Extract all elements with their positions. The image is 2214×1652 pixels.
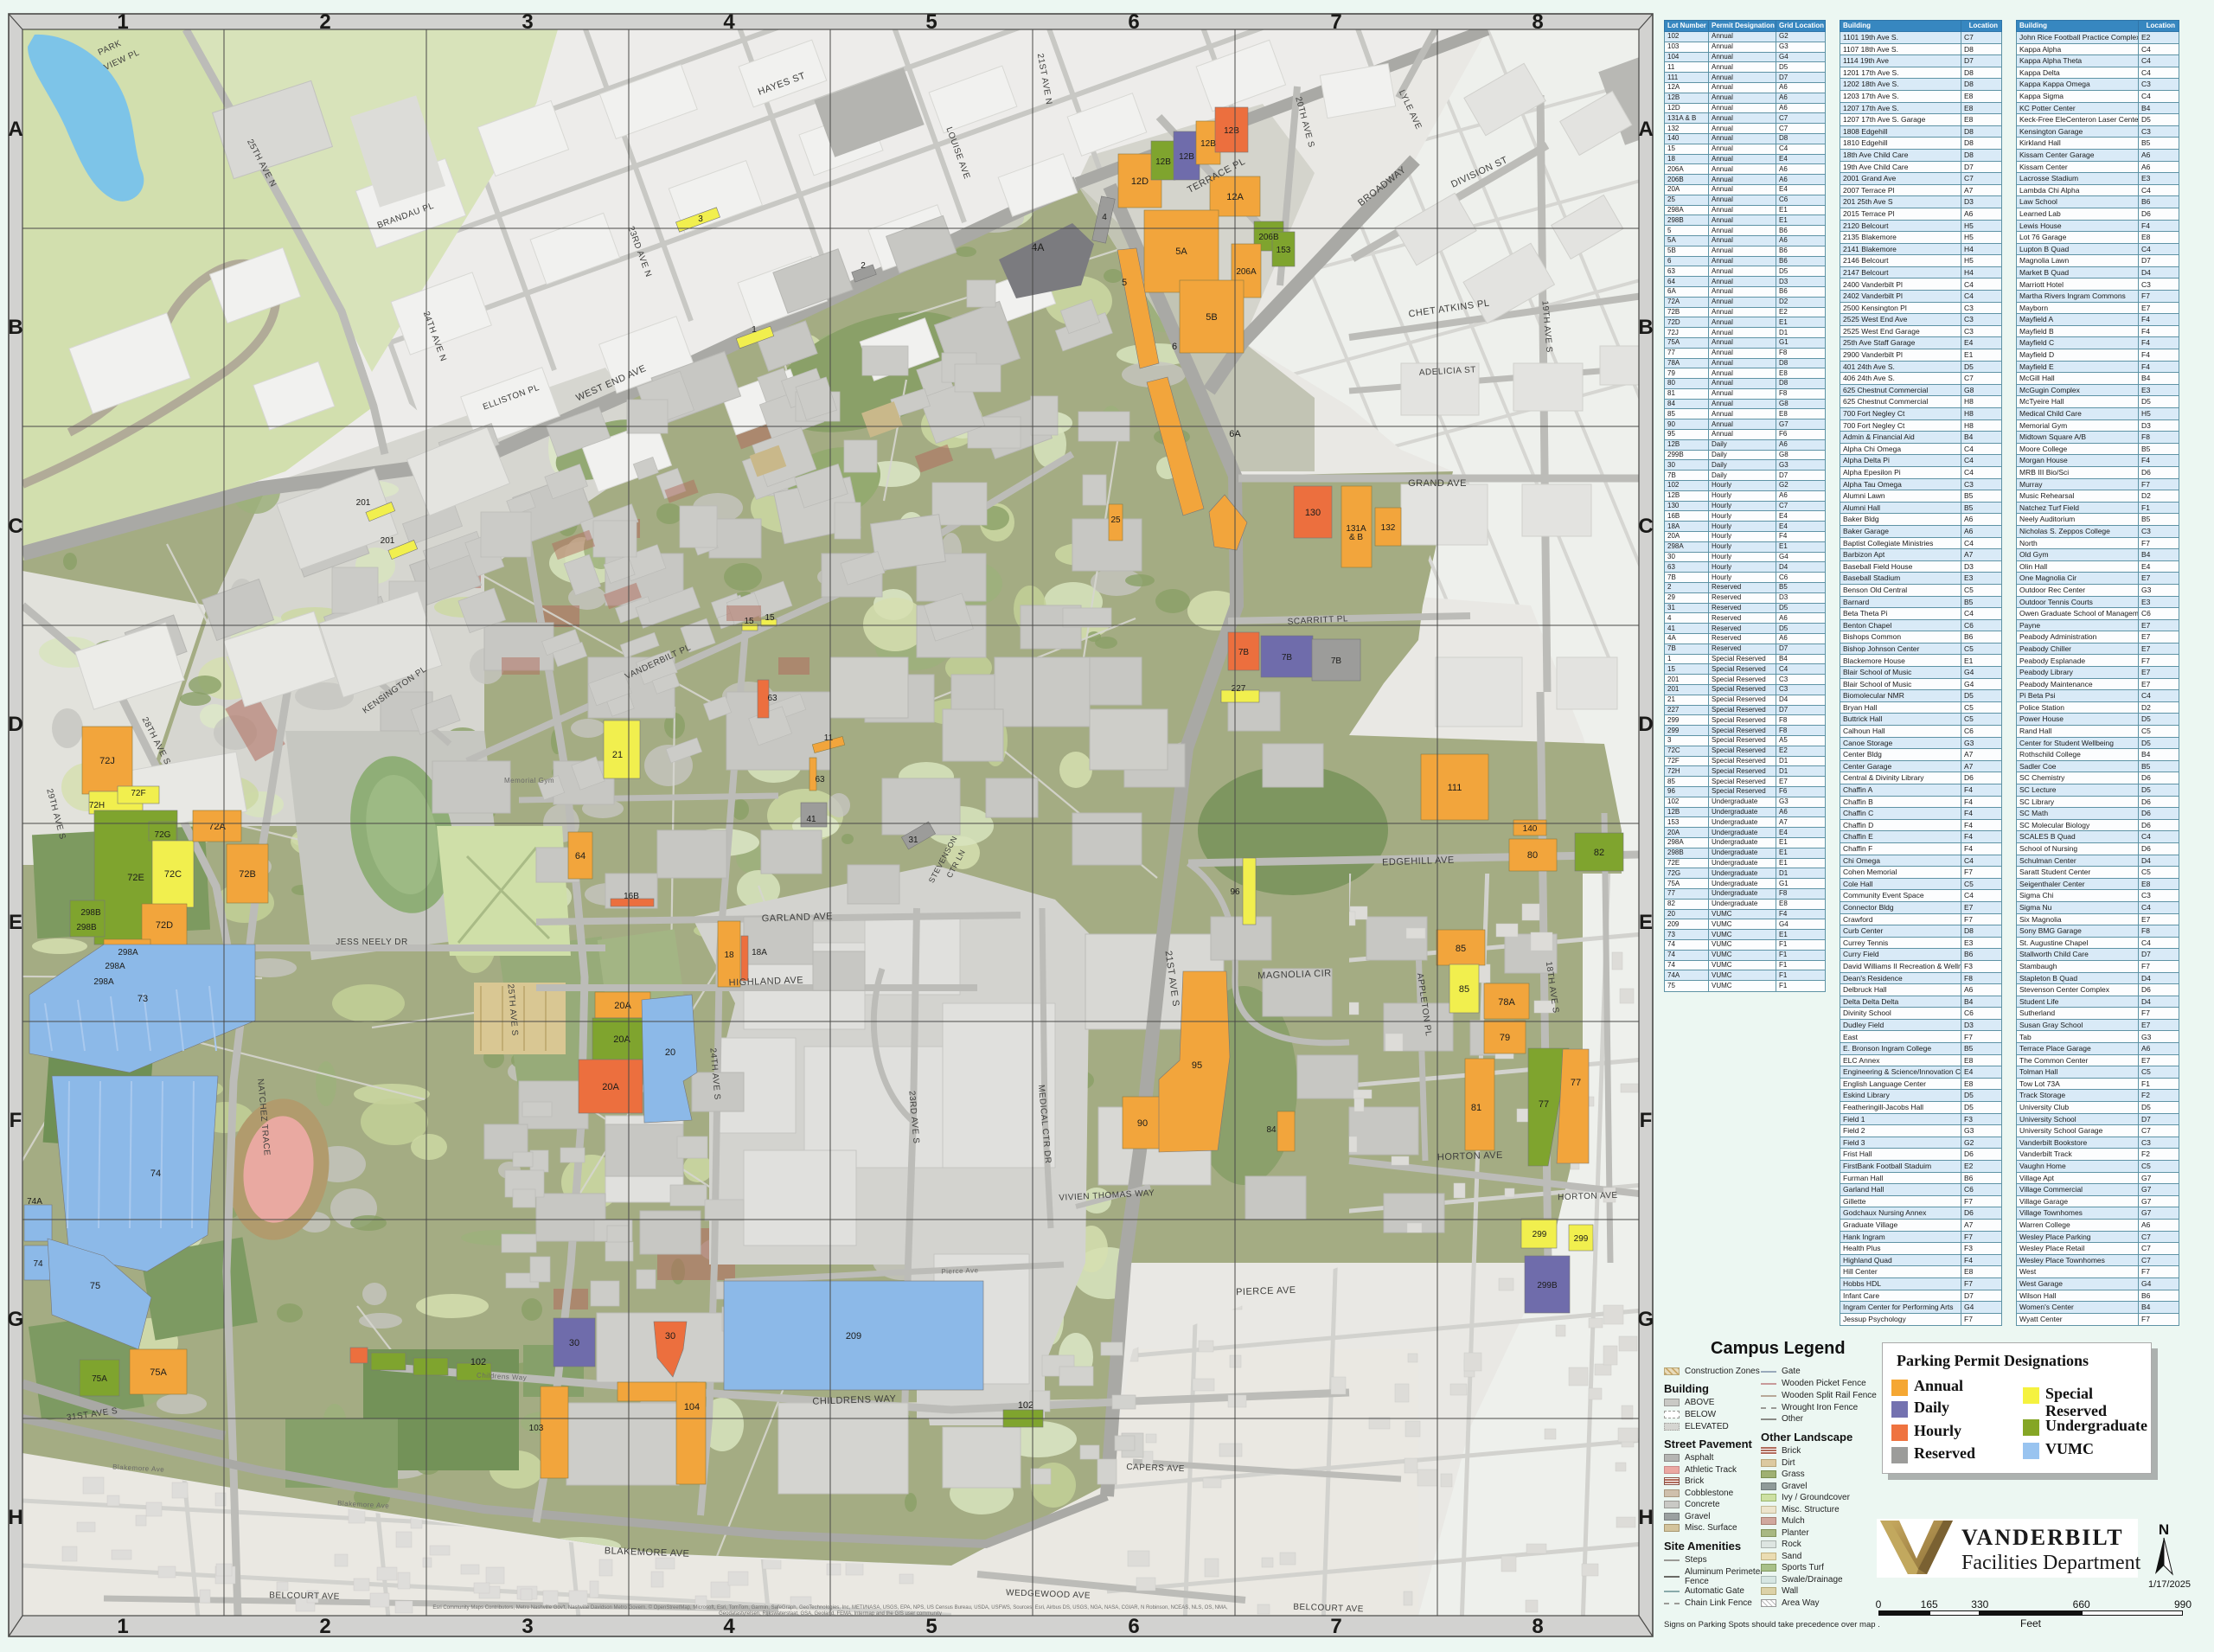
svg-text:N: N — [2159, 1521, 2169, 1538]
svg-text:72E: 72E — [127, 873, 144, 883]
svg-text:201: 201 — [356, 498, 371, 508]
svg-text:79: 79 — [1500, 1033, 1510, 1043]
svg-text:A: A — [1638, 118, 1653, 141]
svg-text:77: 77 — [1571, 1078, 1581, 1088]
svg-text:15: 15 — [765, 613, 775, 623]
svg-text:75A: 75A — [150, 1367, 167, 1378]
svg-text:11: 11 — [824, 733, 834, 743]
svg-text:12D: 12D — [1131, 176, 1149, 187]
svg-text:90: 90 — [1137, 1118, 1148, 1129]
svg-text:72C: 72C — [164, 869, 182, 880]
svg-text:8: 8 — [1532, 1615, 1543, 1638]
svg-text:299B: 299B — [1537, 1281, 1558, 1290]
svg-text:7: 7 — [1330, 1615, 1341, 1638]
svg-text:21: 21 — [612, 750, 623, 760]
svg-text:20A: 20A — [613, 1034, 630, 1045]
svg-text:299: 299 — [1533, 1230, 1547, 1239]
svg-text:B: B — [8, 316, 22, 339]
svg-text:BELCOURT AVE: BELCOURT AVE — [269, 1591, 340, 1601]
svg-text:77: 77 — [1539, 1099, 1549, 1110]
svg-text:5: 5 — [925, 1615, 937, 1638]
svg-text:15: 15 — [744, 617, 754, 626]
svg-text:72H: 72H — [89, 801, 105, 810]
svg-text:75A: 75A — [92, 1374, 107, 1384]
svg-text:7B: 7B — [1238, 648, 1250, 657]
svg-text:75: 75 — [90, 1281, 100, 1291]
svg-text:20: 20 — [665, 1047, 675, 1058]
svg-text:298B: 298B — [76, 923, 97, 932]
svg-text:63: 63 — [767, 694, 777, 703]
svg-text:C: C — [8, 515, 22, 538]
svg-text:JESS NEELY DR: JESS NEELY DR — [336, 938, 407, 947]
svg-text:78A: 78A — [1498, 997, 1515, 1008]
svg-text:74A: 74A — [27, 1197, 42, 1207]
svg-text:D: D — [8, 713, 22, 736]
svg-text:80: 80 — [1527, 850, 1538, 861]
svg-text:8: 8 — [1532, 10, 1543, 34]
svg-text:12B: 12B — [1224, 126, 1239, 136]
svg-text:298A: 298A — [105, 962, 125, 971]
svg-text:81: 81 — [1471, 1103, 1481, 1113]
svg-text:73: 73 — [138, 994, 148, 1004]
svg-text:72J: 72J — [99, 756, 115, 766]
svg-text:G: G — [1638, 1308, 1654, 1331]
svg-text:2: 2 — [319, 10, 330, 34]
svg-text:5A: 5A — [1175, 247, 1187, 257]
svg-text:298A: 298A — [118, 948, 138, 957]
svg-text:Pierce Ave: Pierce Ave — [941, 1266, 978, 1276]
svg-text:7: 7 — [1330, 10, 1341, 34]
svg-text:227: 227 — [1232, 684, 1246, 694]
svg-text:102: 102 — [1018, 1400, 1033, 1411]
svg-text:298B: 298B — [80, 908, 101, 918]
svg-text:72G: 72G — [155, 830, 171, 840]
svg-text:299: 299 — [1574, 1234, 1589, 1244]
svg-text:4A: 4A — [1032, 241, 1045, 253]
svg-text:63: 63 — [815, 775, 825, 784]
svg-text:4: 4 — [1102, 213, 1107, 222]
svg-text:72F: 72F — [131, 789, 145, 798]
svg-text:C: C — [1638, 515, 1653, 538]
svg-text:5B: 5B — [1206, 312, 1217, 323]
svg-text:82: 82 — [1594, 848, 1604, 858]
svg-text:3: 3 — [522, 1615, 533, 1638]
svg-text:206B: 206B — [1258, 233, 1279, 242]
svg-text:64: 64 — [575, 851, 585, 861]
svg-text:95: 95 — [1192, 1060, 1202, 1071]
svg-text:31: 31 — [908, 836, 918, 845]
svg-text:30: 30 — [665, 1331, 675, 1341]
svg-text:3: 3 — [698, 215, 703, 224]
svg-text:6: 6 — [1172, 342, 1177, 352]
svg-text:F: F — [10, 1109, 22, 1132]
svg-text:111: 111 — [1448, 783, 1462, 793]
svg-text:209: 209 — [846, 1331, 861, 1341]
svg-text:B: B — [1638, 316, 1653, 339]
svg-text:5: 5 — [1122, 278, 1127, 288]
svg-text:103: 103 — [529, 1424, 544, 1433]
svg-text:130: 130 — [1305, 508, 1321, 518]
svg-text:6: 6 — [1128, 10, 1139, 34]
svg-text:1: 1 — [117, 10, 128, 34]
svg-text:201: 201 — [381, 536, 395, 546]
svg-text:A: A — [8, 118, 22, 141]
svg-text:D: D — [1638, 713, 1653, 736]
svg-text:1: 1 — [117, 1615, 128, 1638]
svg-text:E: E — [9, 911, 22, 934]
svg-text:102: 102 — [470, 1357, 486, 1367]
svg-text:Memorial Gym: Memorial Gym — [504, 777, 554, 784]
svg-text:20A: 20A — [602, 1082, 619, 1092]
svg-text:2: 2 — [861, 261, 866, 271]
svg-text:E: E — [1639, 911, 1653, 934]
svg-text:74: 74 — [33, 1259, 43, 1269]
svg-text:140: 140 — [1523, 824, 1538, 834]
svg-text:85: 85 — [1459, 984, 1469, 995]
svg-text:12B: 12B — [1200, 139, 1216, 149]
svg-text:7B: 7B — [1331, 656, 1342, 666]
svg-text:153: 153 — [1277, 246, 1291, 255]
svg-text:H: H — [1638, 1506, 1653, 1529]
svg-text:4: 4 — [723, 10, 735, 34]
svg-text:72B: 72B — [239, 869, 256, 880]
svg-text:5: 5 — [925, 10, 937, 34]
svg-text:72D: 72D — [156, 920, 173, 931]
svg-text:85: 85 — [1456, 944, 1466, 954]
svg-text:F: F — [1640, 1109, 1653, 1132]
svg-text:& B: & B — [1349, 533, 1363, 542]
svg-text:41: 41 — [806, 815, 816, 824]
svg-text:104: 104 — [684, 1402, 700, 1412]
svg-text:4: 4 — [723, 1615, 735, 1638]
svg-text:PIERCE AVE: PIERCE AVE — [1236, 1285, 1296, 1297]
svg-text:2: 2 — [319, 1615, 330, 1638]
svg-text:H: H — [8, 1506, 22, 1529]
svg-text:206A: 206A — [1236, 267, 1257, 277]
svg-text:1: 1 — [752, 325, 757, 335]
svg-text:298A: 298A — [93, 977, 114, 987]
svg-text:3: 3 — [522, 10, 533, 34]
svg-text:Facilities Department: Facilities Department — [1961, 1552, 2141, 1574]
svg-text:G: G — [8, 1308, 24, 1331]
svg-text:84: 84 — [1266, 1125, 1277, 1135]
svg-text:25: 25 — [1110, 515, 1121, 525]
svg-text:12B: 12B — [1155, 157, 1171, 167]
svg-text:30: 30 — [569, 1338, 579, 1348]
svg-text:74: 74 — [150, 1169, 161, 1179]
svg-text:VANDERBILT: VANDERBILT — [1961, 1525, 2124, 1550]
svg-text:132: 132 — [1381, 523, 1396, 533]
svg-text:18: 18 — [724, 951, 734, 960]
svg-text:7B: 7B — [1282, 653, 1293, 663]
svg-text:12B: 12B — [1179, 152, 1194, 162]
svg-text:6: 6 — [1128, 1615, 1139, 1638]
svg-text:16B: 16B — [624, 892, 639, 901]
svg-text:18A: 18A — [752, 948, 767, 957]
